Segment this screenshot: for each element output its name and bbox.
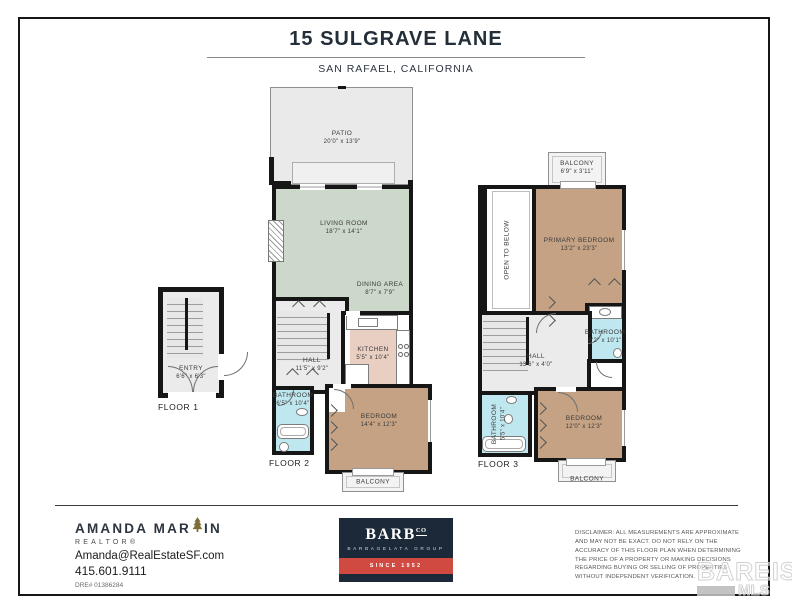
page-title: 15 SULGRAVE LANE: [0, 28, 792, 51]
floor3-label: FLOOR 3: [478, 459, 519, 469]
brokerage-band: SINCE 1952: [339, 558, 453, 574]
room-label-primary: PRIMARY BEDROOM 13'2" x 23'3": [544, 236, 615, 254]
room-label-kitchen: KITCHEN 5'5" x 10'4": [356, 345, 389, 363]
balcony-threshold: [352, 468, 394, 476]
tree-icon: [191, 517, 204, 536]
room-label-bath3-1: BATHROOM 6'2" x 10'1": [585, 328, 625, 346]
room-label-balcony3-top: BALCONY 6'9" x 3'11": [560, 159, 594, 177]
floor2-label: FLOOR 2: [269, 458, 310, 468]
room-label-bedroom2: BEDROOM 14'4" x 12'3": [361, 412, 398, 430]
room-label-hall3: HALL 13'6" x 4'0": [519, 352, 552, 370]
fireplace: [268, 220, 284, 262]
room-label-bath2: BATHROOM 6'5" x 10'4": [273, 391, 313, 409]
room-label-living: LIVING ROOM 18'7" x 14'1": [320, 219, 368, 237]
agent-license: DRE# 01386284: [75, 582, 224, 589]
brokerage-name: BARBCO: [365, 527, 426, 543]
room-label-patio: PATIO 20'0" x 13'9": [324, 129, 361, 147]
room-label-balcony3-bottom: BALCONY: [570, 474, 604, 483]
floor-plan-sheet: 15 SULGRAVE LANE SAN RAFAEL, CALIFORNIA …: [0, 0, 792, 612]
agent-email: Amanda@RealEstateSF.com: [75, 550, 224, 562]
window: [622, 230, 627, 270]
stove-burner: [404, 352, 409, 357]
toilet: [613, 348, 622, 358]
stove-burner: [398, 344, 403, 349]
sink: [296, 408, 308, 416]
kitchen-sink: [358, 318, 378, 327]
floor1-stair-rail: [185, 298, 188, 350]
wall-stub: [338, 86, 346, 89]
kitchen-counter-right: [396, 330, 410, 388]
floor2-stairs: [277, 311, 329, 361]
window: [428, 400, 433, 442]
agent-phone: 415.601.9111: [75, 564, 224, 578]
watermark-mls: MLS: [738, 583, 770, 598]
balcony-threshold: [560, 181, 596, 189]
agent-card: AMANDA MARIN REALTOR® Amanda@RealEstateS…: [75, 517, 224, 589]
room-label-balcony2: BALCONY: [356, 477, 390, 486]
balcony-threshold: [566, 458, 606, 466]
agent-name: AMANDA MARIN: [75, 517, 224, 536]
page-subtitle: SAN RAFAEL, CALIFORNIA: [0, 63, 792, 75]
toilet: [279, 442, 289, 452]
sink: [599, 308, 611, 316]
sink: [506, 396, 517, 404]
sliding-door: [300, 184, 325, 190]
brokerage-logo: BARBCO BARBAGELATA GROUP SINCE 1952: [339, 518, 453, 582]
watermark-bar: [697, 586, 735, 596]
stove-burner: [404, 344, 409, 349]
bareis-mls-watermark: BAREIS® MLS: [697, 560, 792, 598]
floor2-stair-rail: [327, 313, 330, 359]
brokerage-group: BARBAGELATA GROUP: [347, 547, 444, 552]
sliding-door: [357, 184, 382, 190]
window: [622, 410, 627, 446]
room-label-open-below: OPEN TO BELOW: [502, 220, 511, 280]
title-divider: [207, 57, 585, 58]
room-label-hall2: HALL 11'5" x 9'2": [296, 356, 329, 374]
room-label-dining: DINING AREA 8'7" x 7'9": [357, 280, 403, 298]
stove-burner: [398, 352, 403, 357]
kitchen-door-gap: [346, 311, 360, 316]
floor1-front-door-gap: [168, 392, 216, 398]
floor2-patio-steps: [292, 162, 395, 184]
bathtub: [277, 424, 309, 439]
room-label-bedroom3: BEDROOM 12'0" x 12'3": [566, 414, 603, 432]
room-label-bath3-2: BATHROOM 5'5" x 10'4": [490, 404, 508, 444]
agent-role: REALTOR®: [75, 539, 224, 546]
footer-divider: [55, 505, 738, 506]
floor1-label: FLOOR 1: [158, 402, 199, 412]
